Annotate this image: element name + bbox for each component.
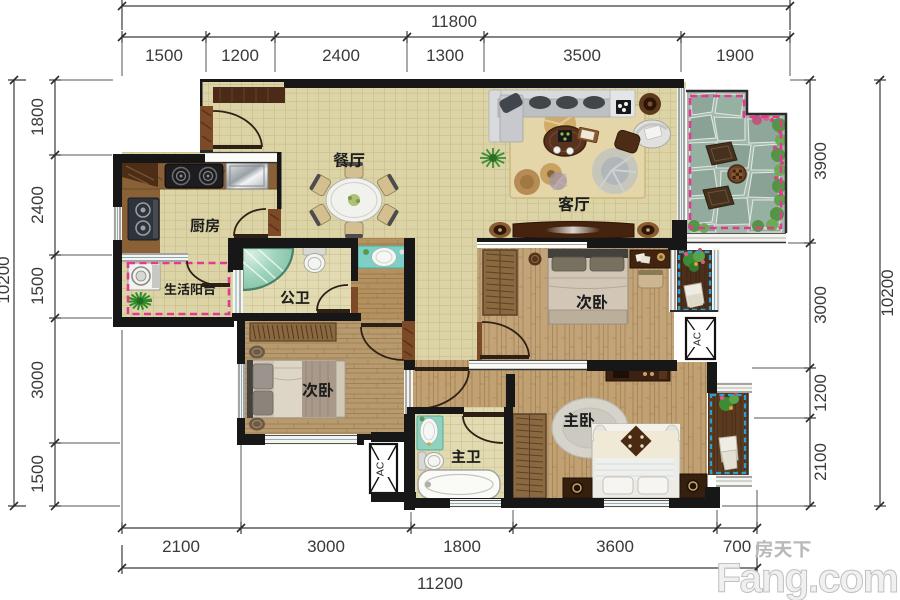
- svg-text:1200: 1200: [221, 46, 259, 65]
- svg-text:1800: 1800: [443, 537, 481, 556]
- svg-text:1800: 1800: [28, 98, 47, 136]
- svg-text:2400: 2400: [28, 186, 47, 224]
- svg-text:3600: 3600: [596, 537, 634, 556]
- svg-text:3000: 3000: [811, 286, 830, 324]
- svg-text:2100: 2100: [162, 537, 200, 556]
- svg-text:1300: 1300: [426, 46, 464, 65]
- svg-text:1900: 1900: [716, 46, 754, 65]
- svg-text:2100: 2100: [811, 443, 830, 481]
- svg-text:11200: 11200: [417, 574, 463, 593]
- svg-text:2400: 2400: [322, 46, 360, 65]
- svg-text:AC: AC: [693, 332, 704, 346]
- svg-text:1500: 1500: [28, 267, 47, 305]
- svg-text:11800: 11800: [431, 12, 477, 31]
- svg-text:700: 700: [723, 537, 751, 556]
- svg-text:1500: 1500: [28, 455, 47, 493]
- svg-text:10200: 10200: [878, 269, 897, 316]
- svg-text:AC: AC: [375, 461, 387, 476]
- svg-text:3900: 3900: [811, 142, 830, 180]
- svg-text:1500: 1500: [145, 46, 183, 65]
- svg-text:3500: 3500: [563, 46, 601, 65]
- svg-text:3000: 3000: [28, 361, 47, 399]
- svg-text:Fang.com: Fang.com: [716, 555, 898, 600]
- svg-text:3000: 3000: [307, 537, 345, 556]
- svg-text:10200: 10200: [0, 256, 13, 303]
- svg-text:1200: 1200: [811, 374, 830, 412]
